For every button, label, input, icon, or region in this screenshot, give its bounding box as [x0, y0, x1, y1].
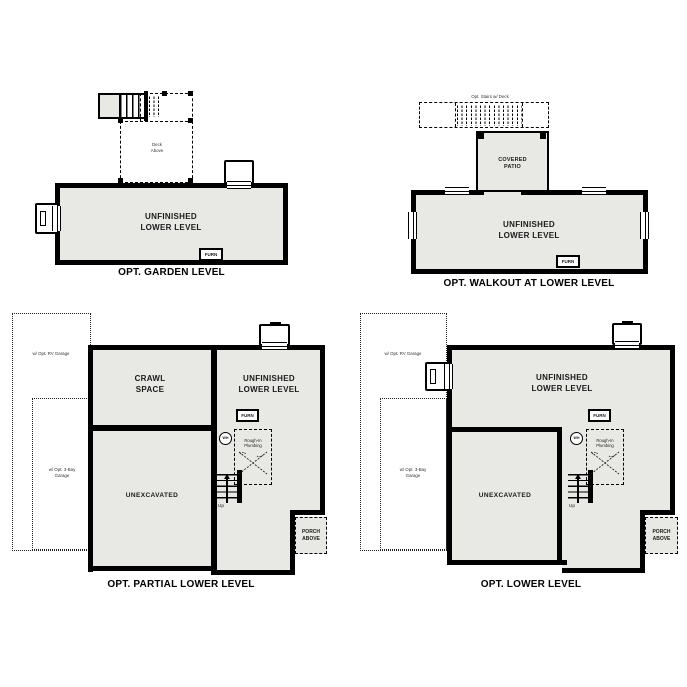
- deck-above-label: Deck Above: [127, 142, 187, 154]
- stairs-dashed-icon: [149, 95, 163, 117]
- wall-segment: [645, 510, 675, 515]
- window-icon: [444, 364, 453, 389]
- furnace-box: FURN: [588, 409, 611, 422]
- plan-caption: OPT. WALKOUT AT LOWER LEVEL: [389, 278, 669, 289]
- stairs-icon: [120, 93, 145, 119]
- wall-segment: [670, 345, 675, 515]
- plan-caption: OPT. GARDEN LEVEL: [55, 267, 288, 278]
- deck-post: [118, 118, 123, 123]
- floorplan-sheet: Deck Above UNFINISHED LOWER LEVEL FURN O…: [0, 0, 687, 687]
- 3bay-garage-label: w/ Opt. 3-Bay Garage: [35, 467, 89, 479]
- plumbing-scribble-icon: [589, 450, 621, 476]
- water-heater-icon: WH: [570, 432, 583, 445]
- patio-door-opening: [484, 190, 521, 197]
- up-arrow-icon: [224, 474, 230, 479]
- room-label: UNFINISHED LOWER LEVEL: [459, 219, 599, 241]
- room-label: UNFINISHED LOWER LEVEL: [512, 372, 612, 394]
- wall-segment: [447, 427, 562, 432]
- room-label: UNFINISHED LOWER LEVEL: [101, 211, 241, 233]
- wall-segment: [562, 568, 645, 573]
- window-icon: [445, 187, 469, 195]
- plan-caption: OPT. PARTIAL LOWER LEVEL: [56, 579, 306, 590]
- window-icon: [52, 206, 61, 231]
- window-icon: [582, 187, 606, 195]
- room-label: UNFINISHED LOWER LEVEL: [219, 373, 319, 395]
- wall-segment: [211, 570, 295, 575]
- rv-garage-label: w/ Opt. RV Garage: [370, 351, 436, 357]
- rv-garage-label: w/ Opt. RV Garage: [16, 351, 86, 357]
- opt-stairs-deck-label: Opt. Stairs w/ Deck: [426, 94, 554, 100]
- wall-segment: [447, 345, 675, 350]
- window-icon: [262, 342, 287, 350]
- plan-caption: OPT. LOWER LEVEL: [406, 579, 656, 590]
- porch-above-area: PORCH ABOVE: [645, 517, 678, 554]
- deck-divider: [522, 103, 523, 127]
- deck-post: [162, 91, 167, 96]
- wall-segment: [295, 510, 325, 515]
- window-icon: [640, 212, 649, 239]
- floor-area: [217, 505, 290, 571]
- 3bay-garage-label: w/ Opt. 3-Bay Garage: [384, 467, 442, 479]
- furnace-box: FURN: [556, 255, 580, 268]
- wall-segment: [447, 560, 567, 565]
- wall-segment: [88, 345, 93, 572]
- patio-post: [478, 133, 484, 139]
- rough-in-label: Rough-In Plumbing: [244, 438, 261, 448]
- deck-post: [188, 91, 193, 96]
- rough-in-label: Rough-In Plumbing: [596, 438, 613, 448]
- porch-above-area: PORCH ABOVE: [295, 517, 327, 554]
- wall-segment: [88, 345, 325, 350]
- patio-post: [540, 133, 546, 139]
- wall-segment: [320, 345, 325, 515]
- stairs-dashed-icon: [457, 104, 522, 126]
- up-label: Up: [213, 504, 229, 509]
- plumbing-scribble-icon: [237, 450, 269, 476]
- furnace-box: FURN: [199, 248, 223, 261]
- stair-rail: [226, 476, 228, 503]
- well-ladder-icon: [430, 369, 436, 384]
- well-cover: [270, 322, 281, 326]
- rough-in-plumbing-area: Rough-In Plumbing: [586, 429, 624, 485]
- up-arrow-icon: [575, 474, 581, 479]
- window-icon: [408, 212, 417, 239]
- furnace-box: FURN: [236, 409, 259, 422]
- well-ladder-icon: [40, 211, 46, 226]
- crawl-space-label: CRAWL SPACE: [100, 373, 200, 395]
- unexcavated-label: UNEXCAVATED: [102, 492, 202, 499]
- up-label: Up: [564, 504, 580, 509]
- water-heater-icon: WH: [219, 432, 232, 445]
- rough-in-plumbing-area: Rough-In Plumbing: [234, 429, 272, 485]
- stair-stringer: [144, 91, 148, 121]
- patio-label: COVERED PATIO: [478, 157, 547, 171]
- well-cover: [622, 321, 633, 325]
- stair-landing: [98, 93, 121, 119]
- deck-post: [188, 118, 193, 123]
- window-icon: [227, 181, 251, 189]
- wall-segment: [557, 427, 562, 565]
- wall-segment: [211, 345, 217, 575]
- wall-segment: [88, 425, 217, 431]
- stair-rail: [577, 476, 579, 503]
- deck-divider: [455, 103, 456, 127]
- window-icon: [615, 341, 639, 349]
- wall-segment: [88, 566, 217, 571]
- unexcavated-label: UNEXCAVATED: [455, 492, 555, 499]
